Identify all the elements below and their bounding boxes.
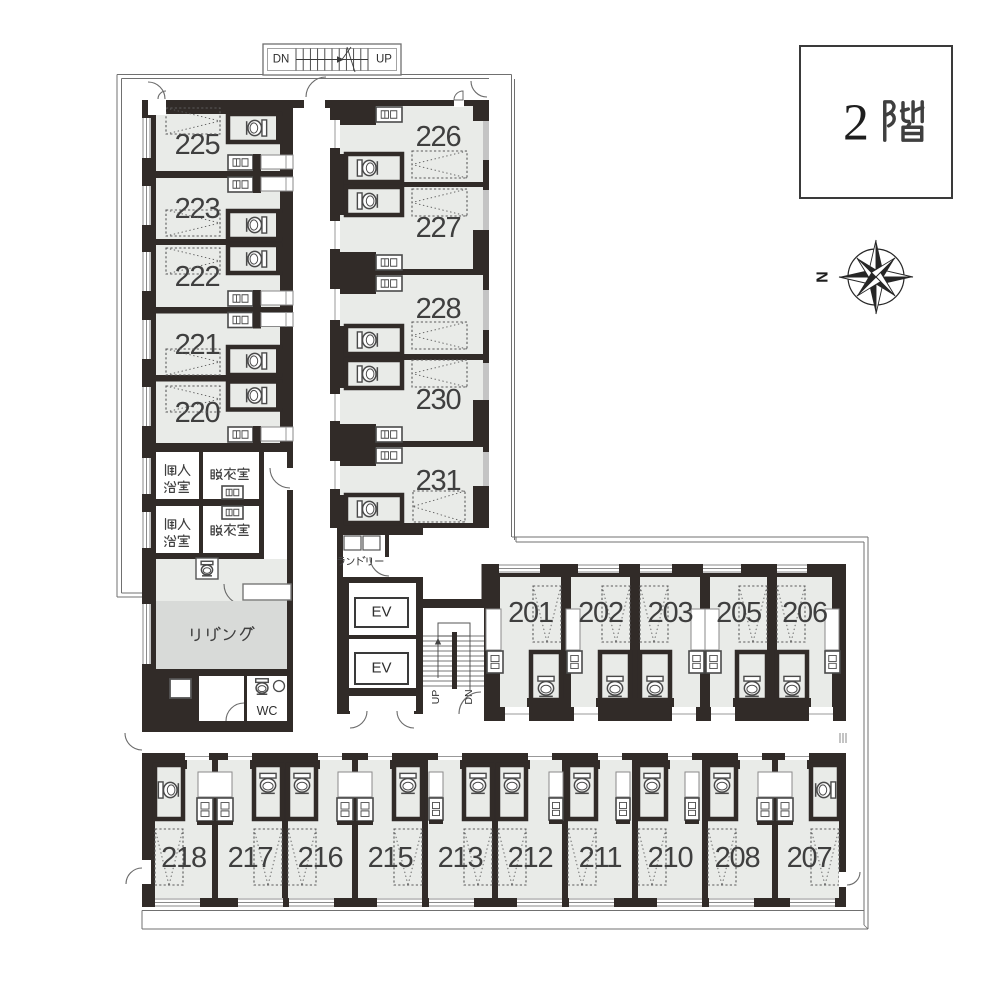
svg-text:WC: WC [257,704,278,718]
svg-text:205: 205 [716,597,761,629]
svg-text:228: 228 [416,293,461,325]
svg-text:210: 210 [648,842,693,874]
svg-text:215: 215 [368,842,413,874]
svg-text:223: 223 [175,193,220,225]
svg-text:DN: DN [463,689,475,704]
svg-text:DN: DN [273,54,290,66]
svg-text:207: 207 [787,842,832,874]
svg-text:230: 230 [416,384,461,416]
svg-text:2: 2 [843,95,869,152]
svg-text:220: 220 [175,397,220,429]
svg-text:UP: UP [430,690,442,705]
svg-text:216: 216 [298,842,343,874]
svg-text:206: 206 [782,597,827,629]
svg-text:EV: EV [371,604,391,621]
svg-text:213: 213 [438,842,483,874]
svg-text:203: 203 [648,597,693,629]
svg-text:211: 211 [579,842,622,874]
svg-text:212: 212 [508,842,553,874]
svg-text:EV: EV [371,660,391,677]
svg-text:231: 231 [416,465,461,497]
svg-text:227: 227 [416,212,461,244]
svg-text:222: 222 [175,261,220,293]
svg-text:201: 201 [508,597,553,629]
svg-text:N: N [813,271,830,283]
svg-text:202: 202 [578,597,623,629]
svg-text:217: 217 [228,842,273,874]
svg-text:226: 226 [416,121,461,153]
svg-text:208: 208 [715,842,760,874]
svg-text:221: 221 [175,329,220,361]
svg-text:218: 218 [161,842,206,874]
svg-text:UP: UP [376,54,392,66]
